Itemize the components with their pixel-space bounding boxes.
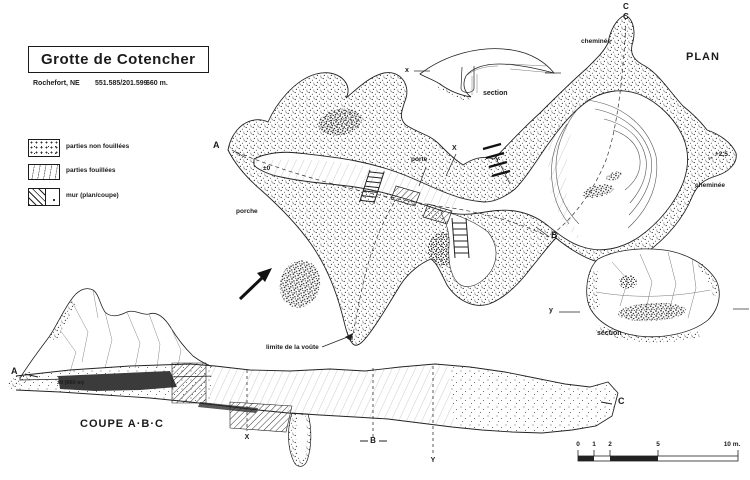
coupe-band	[16, 363, 618, 466]
chimney-top-label: cheminée	[581, 39, 611, 46]
section-bottom-marker: y	[549, 307, 553, 314]
coordinates-label: 551.585/201.599	[95, 80, 148, 87]
coupe-wall-block-1	[172, 363, 206, 403]
legend-swatch-unexcavated	[28, 139, 60, 157]
marker-c-bottom: C	[623, 13, 629, 21]
legend-label-unexcavated: parties non fouillées	[66, 144, 129, 151]
coupe-wall-block-2	[230, 402, 292, 432]
scale-tick-0: 0	[576, 442, 580, 449]
elevation-plus-label: +2,5	[715, 152, 728, 159]
section-inset-bottom	[559, 249, 749, 342]
plan-marker-a: A	[213, 141, 220, 150]
legend-swatch-wall	[28, 188, 60, 206]
vault-limit-label: limite de la voûte	[266, 345, 319, 352]
coupe-marker-b: B	[370, 437, 376, 445]
marker-c-top: C	[623, 3, 629, 11]
coupe-marker-a: A	[11, 367, 18, 376]
coupe-marker-c: C	[618, 397, 625, 406]
scale-end-label: 10 m.	[724, 442, 741, 449]
section-bottom-label: section	[597, 330, 622, 337]
north-arrow	[240, 268, 272, 299]
plain-texture	[46, 189, 60, 205]
plan-marker-y: Y	[495, 157, 500, 164]
altitude-label: 660 m.	[146, 80, 168, 87]
legend-label-wall: mur (plan/coupe)	[66, 193, 119, 200]
section-top-marker: x	[405, 67, 409, 74]
scale-tick-5: 5	[656, 442, 660, 449]
legend-label-excavated: parties fouillées	[66, 168, 116, 175]
plan-marker-x: X	[452, 145, 457, 152]
section-top-label: section	[483, 90, 508, 97]
chimney-right-label: cheminée	[695, 183, 725, 190]
coupe-heading: COUPE A·B·C	[80, 419, 164, 430]
scale-tick-2: 2	[608, 442, 612, 449]
porch-label: porche	[236, 209, 258, 216]
legend-swatch-excavated	[28, 164, 60, 180]
plan-marker-b: B	[551, 231, 558, 240]
coupe-datum-label: ±0 (660 m)	[57, 381, 84, 387]
plan-datum-label: ±0	[263, 166, 270, 173]
coupe-marker-x: X	[245, 434, 250, 441]
scale-tick-1: 1	[592, 442, 596, 449]
scale-bar	[578, 450, 738, 461]
plan-heading: PLAN	[686, 52, 720, 63]
location-label: Rochefort, NE	[33, 80, 80, 87]
map-title: Grotte de Cotencher	[28, 46, 209, 73]
door-label: porte	[411, 157, 427, 164]
coupe-marker-y: Y	[431, 457, 436, 464]
hatch-texture	[29, 189, 46, 205]
cave-survey-sheet: Grotte de Cotencher Rochefort, NE 551.58…	[0, 0, 750, 480]
